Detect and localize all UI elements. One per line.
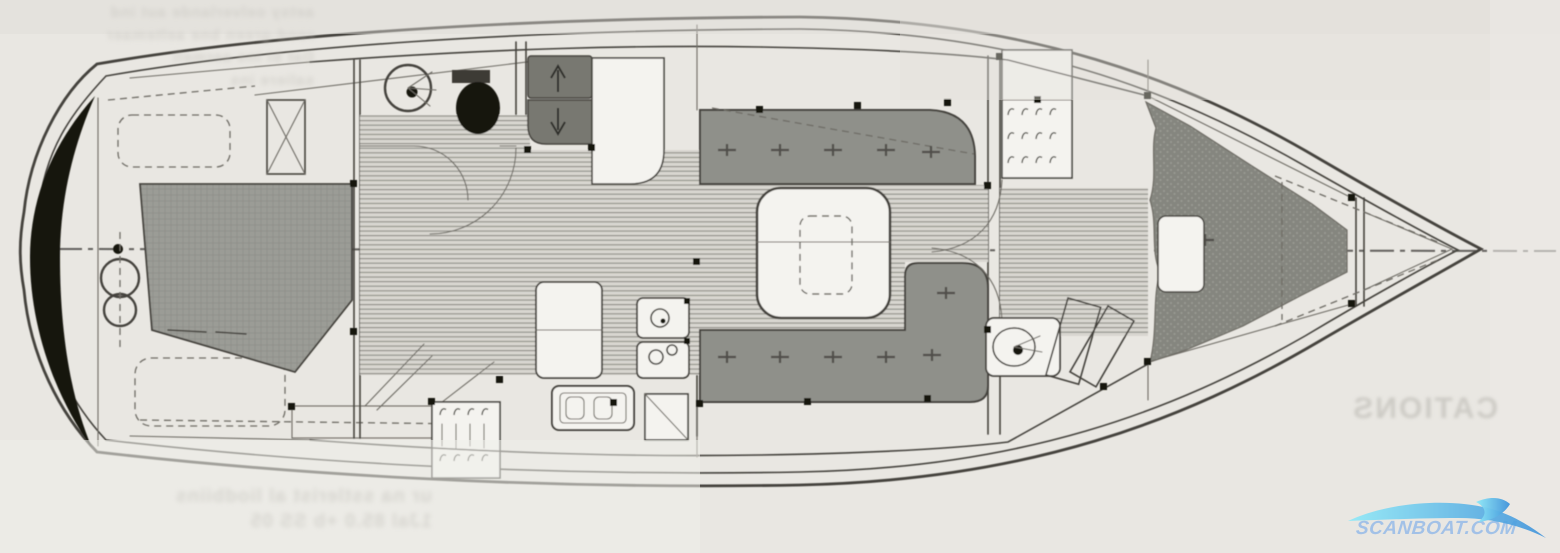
sink-unit (637, 298, 689, 338)
step-panel-up (528, 56, 592, 98)
rudder-stock-dot (113, 244, 123, 254)
wet-locker (432, 402, 500, 478)
cockpit-seat-dashed (118, 115, 230, 167)
aft-double-berth (140, 184, 352, 372)
helm-wheel (101, 259, 139, 297)
scanned-boat-layout-page: aetsy oelverlande aut ind rood-green bne… (0, 0, 1560, 553)
toilet (456, 82, 500, 134)
boat-floor-plan-drawing (0, 0, 1560, 553)
toilet-tank (452, 70, 490, 83)
aft-cabin (140, 184, 352, 372)
v-berth-insert (1158, 216, 1204, 292)
saloon-table (757, 188, 890, 318)
port-settee (700, 110, 975, 184)
locker-white (592, 58, 664, 184)
aft-bench-dashed (135, 358, 285, 426)
step-panel-down (528, 100, 592, 144)
